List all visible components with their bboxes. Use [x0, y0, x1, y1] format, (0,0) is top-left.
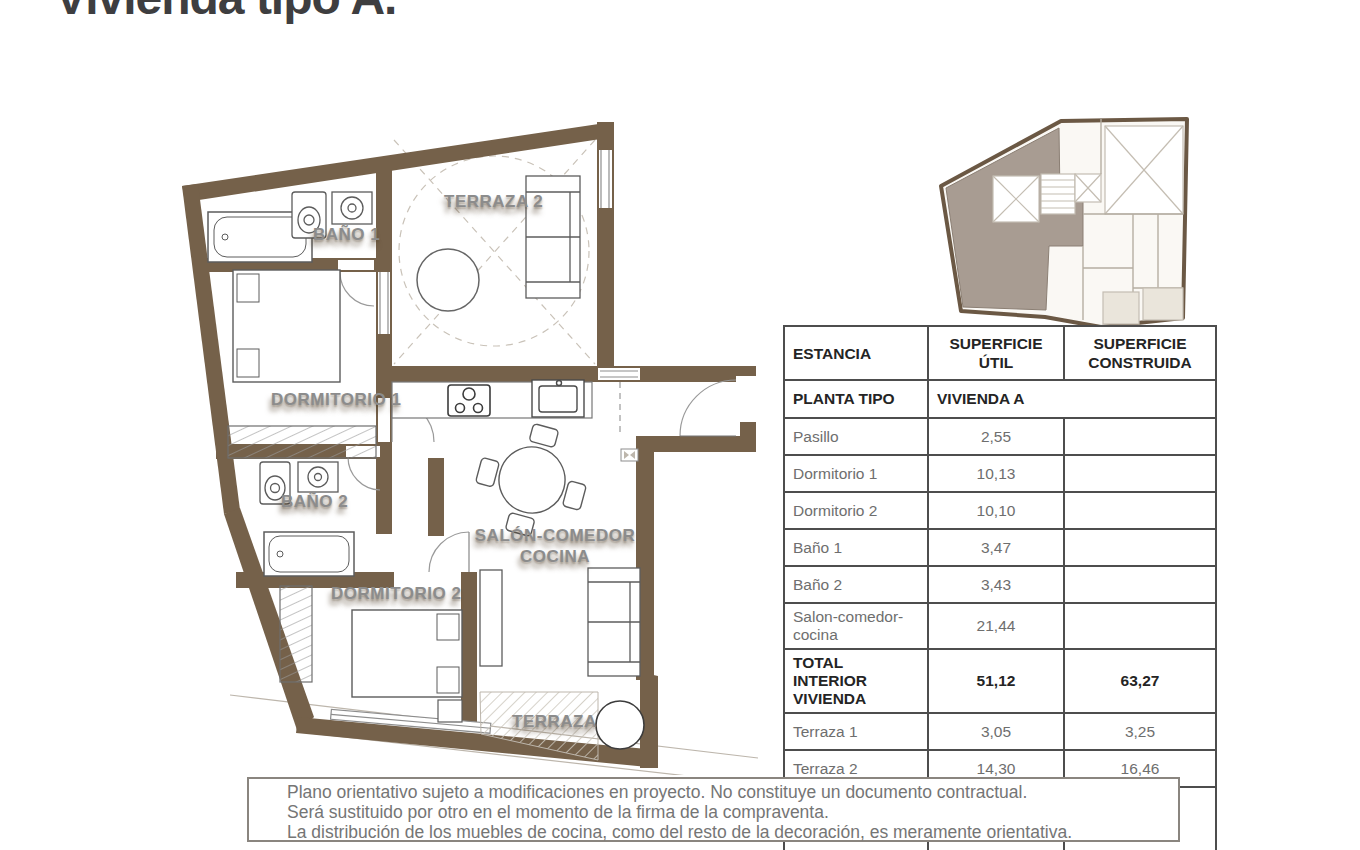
- hob-icon: [448, 385, 490, 416]
- table-cell: Dormitorio 1: [784, 455, 928, 492]
- table-cell: Salon-comedor-cocina: [784, 603, 928, 649]
- table-cell: 3,47: [928, 529, 1064, 566]
- disclaimer-line-1: Plano orientativo sujeto a modificacione…: [287, 782, 1178, 802]
- table-cell: 63,27: [1064, 649, 1216, 713]
- wardrobe-2: [280, 586, 312, 682]
- room-label-dormitorio2: DORMITORIO 2: [331, 584, 461, 604]
- table-header-row: ESTANCIA SUPERFICIE ÚTIL SUPERFICIE CONS…: [784, 326, 1216, 380]
- disclaimer-box: Plano orientativo sujeto a modificacione…: [247, 777, 1180, 842]
- table-cell: Pasillo: [784, 418, 928, 455]
- room-label-bano2: BAÑO 2: [281, 492, 348, 512]
- floor-plan-drawing: [180, 120, 760, 775]
- room-label-terraza2: TERRAZA 2: [444, 192, 543, 212]
- terraza1-table: [596, 701, 644, 749]
- table-cell: Baño 2: [784, 566, 928, 603]
- table-row-bano1: Baño 1 3,47: [784, 529, 1216, 566]
- table-cell: 21,44: [928, 603, 1064, 649]
- room-label-bano1: BAÑO 1: [313, 225, 380, 245]
- table-row-pasillo: Pasillo 2,55: [784, 418, 1216, 455]
- room-label-salon-line1: SALÓN-COMEDOR: [465, 525, 645, 546]
- room-label-dormitorio1: DORMITORIO 1: [271, 390, 401, 410]
- table-subheader-row: PLANTA TIPO VIVIENDA A: [784, 380, 1216, 418]
- table-cell: 10,13: [928, 455, 1064, 492]
- table-row-salon: Salon-comedor-cocina 21,44: [784, 603, 1216, 649]
- table-row-bano2: Baño 2 3,43: [784, 566, 1216, 603]
- sofa-salon: [588, 568, 640, 676]
- table-cell: [1064, 418, 1216, 455]
- nightstand: [438, 700, 462, 722]
- disclaimer-line-2: Será sustituido por otro en el momento d…: [287, 802, 1178, 822]
- shaft-symbol: [621, 449, 638, 461]
- table-cell: 3,05: [928, 713, 1064, 750]
- bed-2: [352, 610, 462, 697]
- washbasin-1: [332, 192, 372, 224]
- table-cell-planta-tipo: PLANTA TIPO: [784, 380, 928, 418]
- page-title: Vivienda tipo A.: [55, 0, 396, 25]
- table-row-dormitorio2: Dormitorio 2 10,10: [784, 492, 1216, 529]
- table-header-construida: SUPERFICIE CONSTRUIDA: [1064, 326, 1216, 380]
- table-header-estancia: ESTANCIA: [784, 326, 928, 380]
- key-plan-room-beige1: [1103, 292, 1139, 324]
- wardrobe-1: [228, 426, 376, 458]
- bed-1: [233, 270, 340, 382]
- room-label-salon-line2: COCINA: [465, 546, 645, 567]
- room-label-terraza1: TERRAZA: [512, 712, 597, 732]
- area-table: ESTANCIA SUPERFICIE ÚTIL SUPERFICIE CONS…: [783, 325, 1217, 850]
- bathtub-2: [264, 532, 354, 576]
- disclaimer-line-3: La distribución de los muebles de cocina…: [287, 822, 1178, 842]
- washbasin-2: [298, 462, 338, 492]
- table-cell: Terraza 1: [784, 713, 928, 750]
- table-cell: 2,55: [928, 418, 1064, 455]
- key-plan-room-beige2: [1143, 288, 1183, 320]
- room-label-salon: SALÓN-COMEDOR COCINA: [465, 525, 645, 567]
- table-cell: 3,25: [1064, 713, 1216, 750]
- tv-unit: [480, 570, 502, 666]
- key-plan: [933, 98, 1211, 333]
- table-cell: 51,12: [928, 649, 1064, 713]
- table-cell-vivienda-a: VIVIENDA A: [928, 380, 1216, 418]
- terraza2-table: [417, 249, 479, 311]
- table-cell: [1064, 492, 1216, 529]
- table-cell: Baño 1: [784, 529, 928, 566]
- table-cell: TOTAL INTERIOR VIVIENDA: [784, 649, 928, 713]
- sink-icon: [532, 380, 584, 417]
- table-row-dormitorio1: Dormitorio 1 10,13: [784, 455, 1216, 492]
- table-cell: [1064, 455, 1216, 492]
- floor-plan: TERRAZA 2 BAÑO 1 DORMITORIO 1 BAÑO 2 DOR…: [180, 120, 760, 775]
- table-cell: Dormitorio 2: [784, 492, 928, 529]
- table-cell: 10,10: [928, 492, 1064, 529]
- table-cell: 3,43: [928, 566, 1064, 603]
- table-header-util: SUPERFICIE ÚTIL: [928, 326, 1064, 380]
- table-row-terraza1: Terraza 1 3,05 3,25: [784, 713, 1216, 750]
- table-cell: [1064, 603, 1216, 649]
- table-cell: [1064, 529, 1216, 566]
- table-row-total-interior: TOTAL INTERIOR VIVIENDA 51,12 63,27: [784, 649, 1216, 713]
- table-cell: [1064, 566, 1216, 603]
- page: { "header": { "title": "Vivienda tipo A.…: [0, 0, 1360, 850]
